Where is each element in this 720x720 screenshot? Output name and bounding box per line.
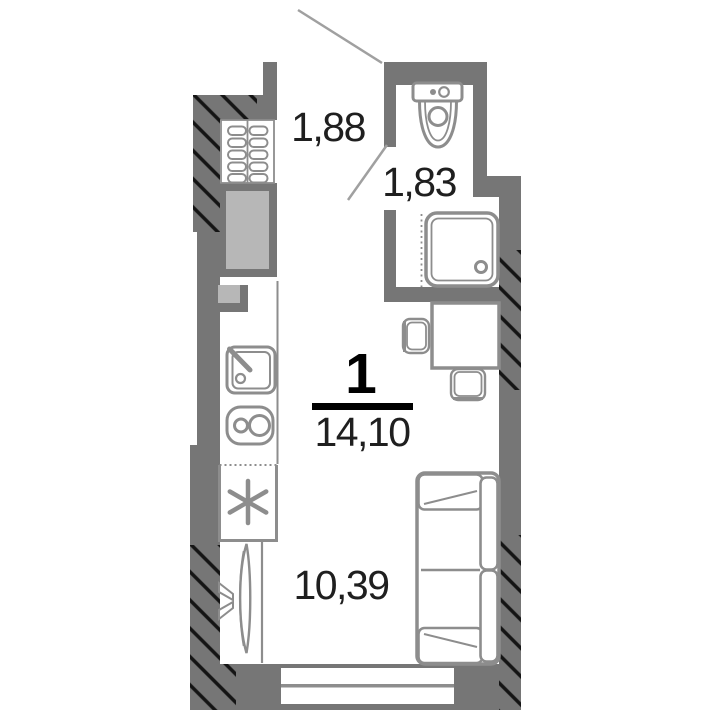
rooms-count-label: 1	[345, 342, 377, 406]
chair-left	[403, 319, 429, 353]
floor-plan: 1,88 1,83 1 14,10 10,39	[0, 0, 720, 720]
tv-mount	[219, 583, 233, 600]
hallway-area-label: 1,88	[291, 104, 365, 150]
sofa	[417, 473, 499, 664]
bathroom-area-label: 1,83	[382, 159, 456, 205]
chair-bottom	[451, 369, 485, 400]
wall-tv	[219, 542, 262, 663]
shower-tray	[422, 213, 499, 287]
radiator	[221, 120, 274, 183]
sofa-back-cushion	[481, 571, 498, 662]
desk	[432, 303, 499, 368]
sofa-back-cushion	[481, 478, 498, 570]
snowflake-icon	[230, 481, 266, 523]
stove	[227, 407, 273, 444]
window	[281, 668, 454, 704]
kitchen-sink	[227, 347, 275, 393]
living-room-area-label: 10,39	[293, 562, 388, 608]
entrance-door-swing	[298, 10, 382, 63]
fridge	[220, 465, 277, 541]
toilet	[413, 83, 462, 147]
tv-mount	[219, 602, 233, 619]
total-area-label: 14,10	[314, 409, 410, 455]
floor-plan-canvas: 1,88 1,83 1 14,10 10,39	[0, 0, 720, 720]
